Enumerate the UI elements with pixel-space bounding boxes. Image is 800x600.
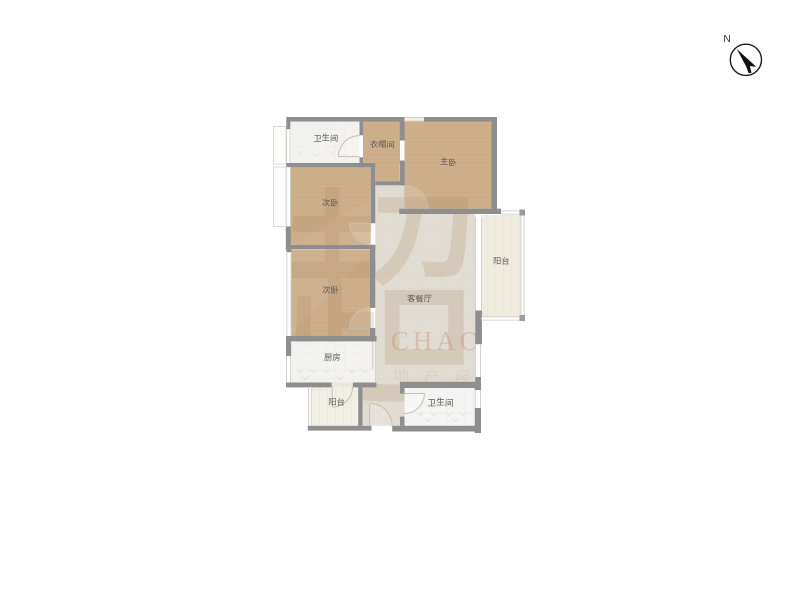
svg-text:CHAO: CHAO — [391, 326, 484, 356]
svg-text:N: N — [723, 33, 731, 45]
